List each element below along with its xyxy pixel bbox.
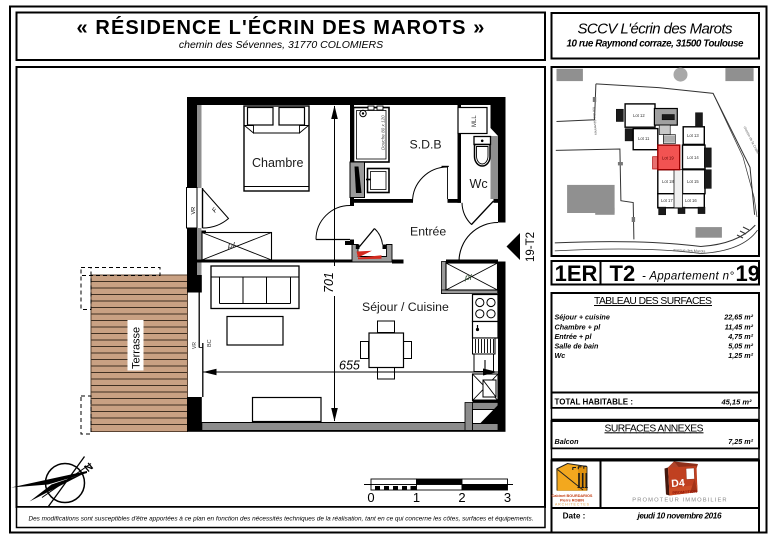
svg-text:Lot 17: Lot 17 xyxy=(661,198,673,203)
svg-text:Cabinet BOURDARIOS: Cabinet BOURDARIOS xyxy=(552,494,593,498)
svg-text:1: 1 xyxy=(413,490,420,505)
svg-text:5,05 m²: 5,05 m² xyxy=(728,342,753,351)
svg-text:Lot 13: Lot 13 xyxy=(687,133,699,138)
svg-text:- Appartement n°: - Appartement n° xyxy=(642,271,734,283)
svg-text:4,75 m²: 4,75 m² xyxy=(727,332,753,341)
svg-text:701: 701 xyxy=(322,272,336,293)
svg-text:pl: pl xyxy=(464,272,473,282)
svg-text:T2: T2 xyxy=(610,261,636,286)
svg-text:Chambre + pl: Chambre + pl xyxy=(555,323,602,332)
svg-text:Des modifications sont suscept: Des modifications sont susceptibles d'êt… xyxy=(29,516,534,523)
svg-text:Salle de bain: Salle de bain xyxy=(555,342,600,351)
svg-text:1ER: 1ER xyxy=(555,261,598,286)
svg-text:« RÉSIDENCE L'ÉCRIN DES MAROTS: « RÉSIDENCE L'ÉCRIN DES MAROTS » xyxy=(77,16,486,39)
svg-text:19: 19 xyxy=(736,261,760,286)
svg-text:chemin des Sévennes, 31770 COL: chemin des Sévennes, 31770 COLOMIERS xyxy=(179,39,383,51)
svg-text:TABLEAU DES SURFACES: TABLEAU DES SURFACES xyxy=(594,296,712,307)
svg-text:10 rue Raymond corraze, 31500: 10 rue Raymond corraze, 31500 Toulouse xyxy=(567,39,745,50)
svg-text:Wc: Wc xyxy=(555,351,566,360)
svg-text:Entrée + pl: Entrée + pl xyxy=(555,332,593,341)
svg-text:Wc: Wc xyxy=(470,177,488,191)
svg-text:Balcon: Balcon xyxy=(555,437,580,446)
svg-text:3: 3 xyxy=(504,490,511,505)
svg-text:TOTAL HABITABLE :: TOTAL HABITABLE : xyxy=(555,398,634,407)
svg-text:Lot 19: Lot 19 xyxy=(662,156,674,161)
svg-text:S.D.B: S.D.B xyxy=(410,138,442,152)
svg-text:pl: pl xyxy=(227,240,236,250)
svg-text:SCCV L'écrin des Marots: SCCV L'écrin des Marots xyxy=(578,21,734,38)
svg-text:11,45 m²: 11,45 m² xyxy=(725,323,754,332)
svg-text:Terrasse: Terrasse xyxy=(131,327,143,369)
svg-text:Lot 14: Lot 14 xyxy=(687,155,699,160)
svg-text:D4: D4 xyxy=(671,477,685,490)
svg-text:Date :: Date : xyxy=(563,512,586,521)
svg-text:655: 655 xyxy=(339,359,360,373)
svg-text:Lot 18: Lot 18 xyxy=(662,179,674,184)
svg-text:BC: BC xyxy=(207,339,213,347)
svg-text:Lot 16: Lot 16 xyxy=(685,198,697,203)
svg-text:7,25 m²: 7,25 m² xyxy=(728,437,753,446)
svg-text:22,65 m²: 22,65 m² xyxy=(723,312,753,321)
svg-text:Séjour / Cuisine: Séjour / Cuisine xyxy=(362,300,449,314)
svg-text:1,25 m²: 1,25 m² xyxy=(728,351,753,360)
svg-text:PROMOTEUR IMMOBILIER: PROMOTEUR IMMOBILIER xyxy=(632,498,727,504)
svg-text:45,15 m²: 45,15 m² xyxy=(720,398,752,407)
svg-text:Lot 11: Lot 11 xyxy=(638,136,650,141)
svg-text:MLL: MLL xyxy=(472,115,478,127)
svg-text:19-T2: 19-T2 xyxy=(525,232,537,262)
svg-text:0: 0 xyxy=(367,490,374,505)
svg-text:jeudi 10 novembre 2016: jeudi 10 novembre 2016 xyxy=(637,512,722,521)
svg-text:VR: VR xyxy=(192,342,198,349)
svg-text:Douche 80 x 120: Douche 80 x 120 xyxy=(381,115,386,150)
svg-text:SURFACES ANNEXES: SURFACES ANNEXES xyxy=(605,423,704,434)
svg-text:Chambre: Chambre xyxy=(252,156,303,170)
svg-text:VR: VR xyxy=(191,207,197,215)
svg-text:Entrée: Entrée xyxy=(410,225,446,239)
svg-text:2: 2 xyxy=(458,490,465,505)
svg-text:Lot 12: Lot 12 xyxy=(633,113,645,118)
svg-text:Lot 15: Lot 15 xyxy=(687,179,699,184)
svg-text:Séjour + cuisine: Séjour + cuisine xyxy=(555,312,610,321)
svg-text:A R C H I T E C T E S: A R C H I T E C T E S xyxy=(555,503,590,507)
